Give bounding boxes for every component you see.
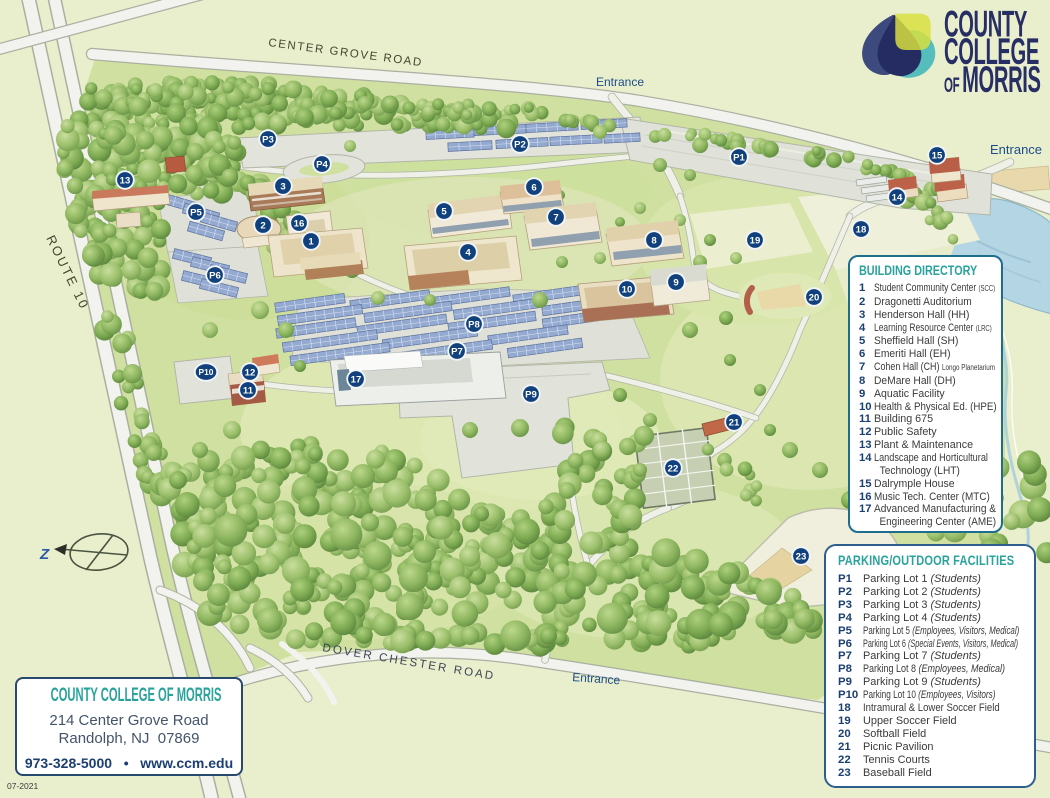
svg-text:23: 23 [796,552,807,563]
svg-text:16: 16 [294,219,305,230]
svg-text:6: 6 [531,183,536,194]
svg-text:21: 21 [729,418,740,429]
svg-text:7: 7 [553,213,558,224]
svg-text:P4: P4 [316,160,328,171]
svg-text:Entrance: Entrance [596,75,644,89]
svg-text:5: 5 [441,207,447,218]
svg-text:13: 13 [120,176,131,187]
svg-text:11: 11 [243,386,254,397]
svg-text:8: 8 [651,236,657,247]
svg-text:Entrance: Entrance [990,142,1042,157]
svg-text:P3: P3 [262,135,274,146]
svg-text:4: 4 [465,248,471,259]
svg-text:20: 20 [809,293,820,304]
svg-text:2: 2 [260,221,265,232]
svg-text:P9: P9 [525,390,537,401]
svg-text:P1: P1 [733,153,745,164]
svg-text:1: 1 [308,237,314,248]
svg-text:10: 10 [622,285,633,296]
svg-text:17: 17 [351,375,362,386]
svg-text:P8: P8 [468,320,480,331]
svg-text:14: 14 [892,193,903,204]
svg-text:P6: P6 [209,271,221,282]
svg-text:22: 22 [668,464,679,475]
svg-text:P5: P5 [190,208,202,219]
svg-text:9: 9 [673,278,678,289]
svg-text:P10: P10 [199,367,214,377]
svg-text:12: 12 [245,368,256,379]
svg-text:19: 19 [750,236,761,247]
svg-text:3: 3 [280,182,285,193]
svg-text:P7: P7 [451,347,463,358]
svg-text:15: 15 [932,151,943,162]
svg-text:18: 18 [856,225,867,236]
svg-text:Z: Z [39,546,50,563]
svg-text:P2: P2 [514,140,526,151]
